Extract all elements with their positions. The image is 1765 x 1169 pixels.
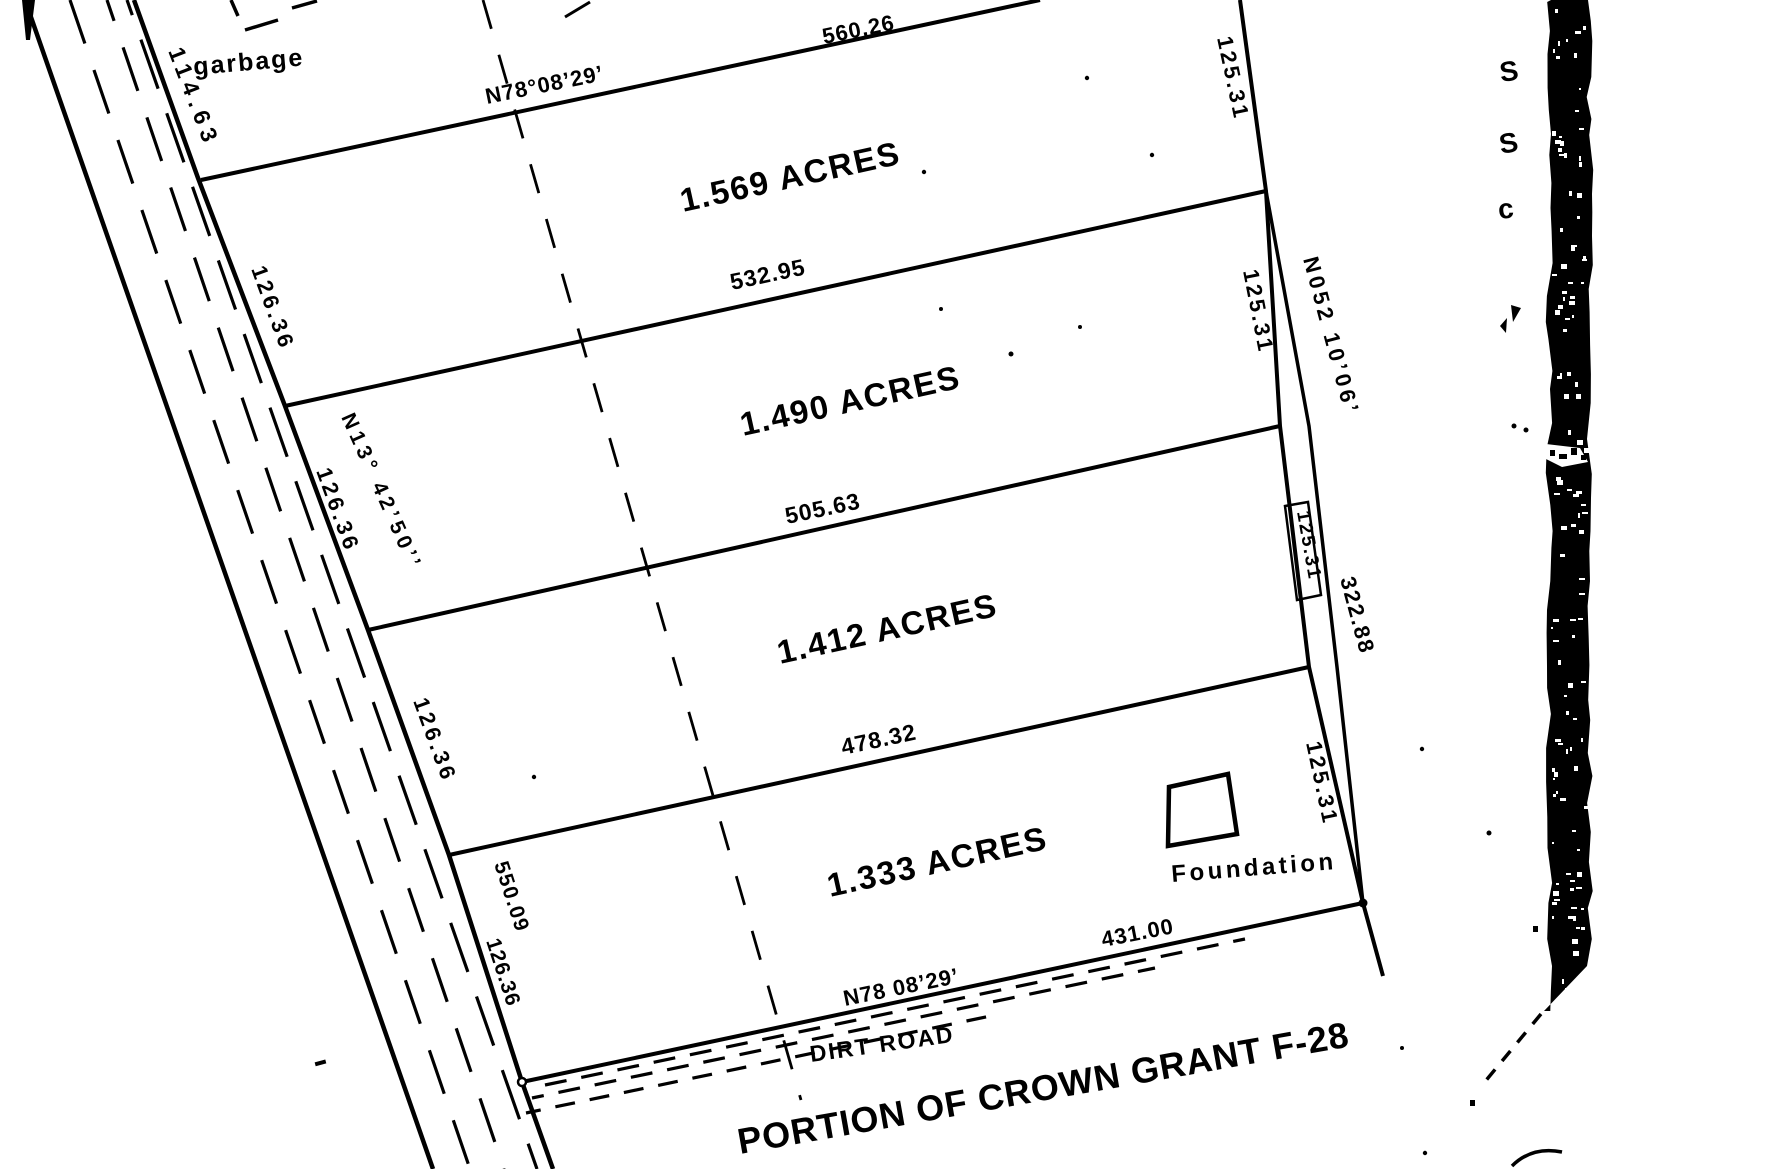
svg-text:1.412 ACRES: 1.412 ACRES xyxy=(774,586,1001,671)
svg-text:c: c xyxy=(1496,193,1515,225)
svg-text:550.09: 550.09 xyxy=(489,858,534,935)
svg-text:1.333 ACRES: 1.333 ACRES xyxy=(824,819,1051,904)
svg-text:DIRT ROAD: DIRT ROAD xyxy=(808,1021,956,1067)
svg-text:Foundation: Foundation xyxy=(1170,848,1337,888)
svg-text:126.36: 126.36 xyxy=(246,262,300,354)
svg-text:126.36: 126.36 xyxy=(408,694,462,786)
svg-text:560.26: 560.26 xyxy=(820,10,897,49)
svg-text:N78 08’29’: N78 08’29’ xyxy=(841,963,961,1011)
svg-text:322.88: 322.88 xyxy=(1335,574,1380,657)
svg-text:532.95: 532.95 xyxy=(728,254,808,295)
svg-text:1.569 ACRES: 1.569 ACRES xyxy=(677,134,904,219)
svg-text:126.36: 126.36 xyxy=(311,464,365,556)
svg-text:S: S xyxy=(1497,126,1521,160)
svg-text:1.490 ACRES: 1.490 ACRES xyxy=(737,358,964,443)
svg-text:N052 10’06’: N052 10’06’ xyxy=(1298,254,1365,419)
svg-text:S: S xyxy=(1498,55,1521,88)
svg-text:garbage: garbage xyxy=(192,43,305,81)
